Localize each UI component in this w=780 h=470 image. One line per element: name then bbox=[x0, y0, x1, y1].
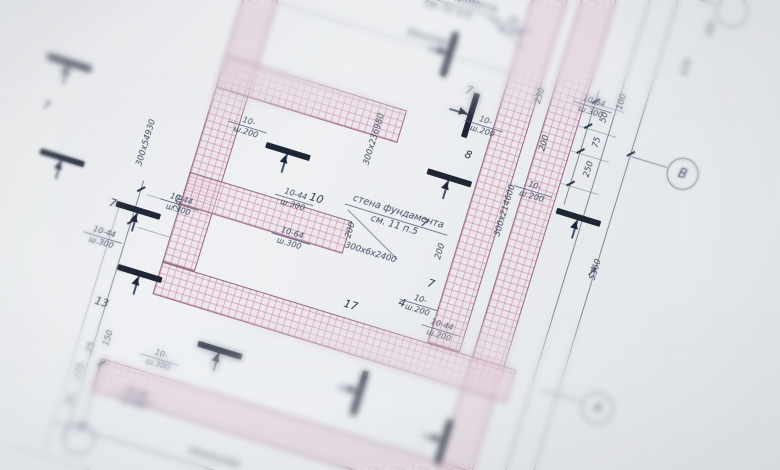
blueprint-photo: 8 7 7 10 7 13 7 17 4 7 7 10-ш.200 10-ш.2… bbox=[0, 0, 780, 470]
rebar-section-mark bbox=[258, 142, 311, 184]
item-number: 17 bbox=[342, 297, 359, 314]
extension-line bbox=[83, 366, 101, 424]
rebar-arrow bbox=[212, 353, 222, 363]
leader-line bbox=[681, 0, 717, 5]
rebar-arrow bbox=[132, 276, 142, 286]
item-number: 13 bbox=[93, 294, 110, 311]
leader-line bbox=[631, 156, 667, 168]
rebar-arrow bbox=[570, 220, 580, 230]
size-label: 300х6х2400 bbox=[187, 446, 241, 470]
rebar-arrow bbox=[441, 180, 451, 190]
item-number: 8 bbox=[463, 148, 473, 162]
rebar-section-mark bbox=[327, 363, 369, 416]
dimension-label: 678 bbox=[677, 50, 697, 85]
foundation-plan-sheet: 8 7 7 10 7 13 7 17 4 7 7 10-ш.200 10-ш.2… bbox=[0, 0, 780, 470]
rebar-section-mark bbox=[110, 264, 163, 306]
rebar-section-mark bbox=[549, 208, 602, 250]
dimension-label: 150 bbox=[99, 320, 119, 355]
rebar-arrow bbox=[61, 65, 71, 75]
dimension-tick bbox=[137, 186, 146, 192]
dimension-label: 100 bbox=[612, 84, 632, 119]
axis-marker: 4 bbox=[577, 388, 617, 428]
rebar-arrow bbox=[54, 160, 64, 170]
dimension-label: 250 bbox=[579, 152, 599, 187]
rebar-section-mark bbox=[190, 341, 243, 383]
size-label: 300х54930 bbox=[135, 118, 159, 167]
wall-annotation: стена фундамента см. 11 п.5 bbox=[395, 0, 505, 32]
rebar-section-mark bbox=[32, 148, 85, 190]
rebar-arrow bbox=[280, 154, 290, 164]
rebar-callout: 10-ш.200 bbox=[397, 289, 441, 321]
item-number: 7 bbox=[41, 98, 51, 112]
axis-marker: В bbox=[663, 154, 703, 194]
axis-marker bbox=[712, 0, 752, 31]
rebar-arrow bbox=[130, 213, 140, 223]
leader-line bbox=[541, 389, 581, 402]
item-number: 7 bbox=[426, 276, 436, 290]
rebar-section-mark bbox=[39, 53, 92, 95]
size-label: 300х6х2400 bbox=[344, 241, 398, 266]
axis-letter: В bbox=[676, 165, 689, 182]
axis-letter: 4 bbox=[591, 400, 603, 417]
rebar-section-mark bbox=[419, 168, 472, 210]
